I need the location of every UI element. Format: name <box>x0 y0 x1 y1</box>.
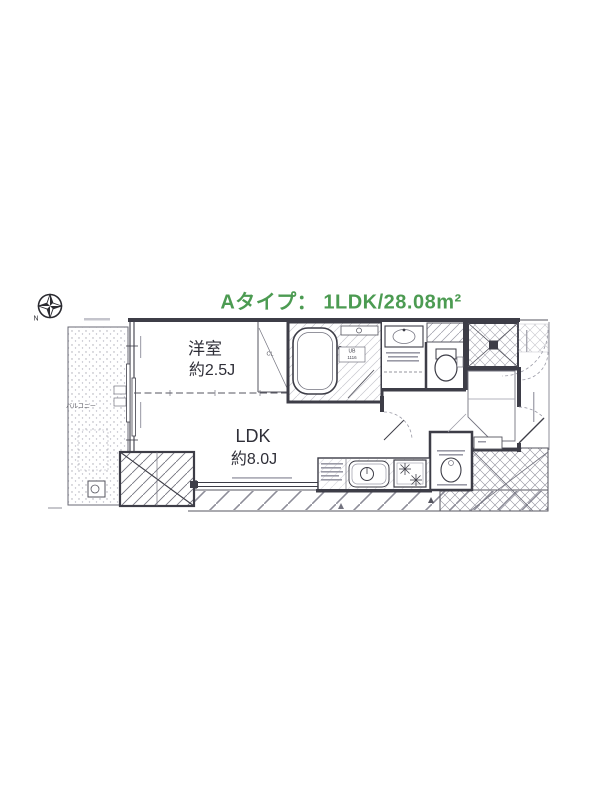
room-label-closet: CL <box>266 352 273 358</box>
hall-door <box>380 396 412 440</box>
stair-block <box>120 452 194 506</box>
closet <box>258 322 290 392</box>
room-size-yoshitsu: 約2.5J <box>189 363 235 379</box>
unit-bath <box>288 322 382 402</box>
floorplan-page: Aタイプ： 1LDK/28.08m² <box>0 0 600 800</box>
room-label-balcony: バルコニー <box>66 404 96 410</box>
room-label-yoshitsu: 洋室 <box>188 341 222 358</box>
entrance-hall <box>466 367 544 452</box>
room-size-unit-bath: 1116 <box>347 356 356 361</box>
room-size-ldk: 約8.0J <box>231 452 277 468</box>
room-label-unit-bath: UB <box>349 350 356 355</box>
kitchen <box>316 458 432 493</box>
room-partition <box>134 390 288 396</box>
room-label-ldk: LDK <box>235 427 270 445</box>
sanitary-room <box>430 414 472 490</box>
floorplan-drawing <box>0 0 600 800</box>
compass-north-label: N <box>33 316 38 323</box>
compass-icon <box>39 295 62 318</box>
elevator <box>468 323 548 422</box>
